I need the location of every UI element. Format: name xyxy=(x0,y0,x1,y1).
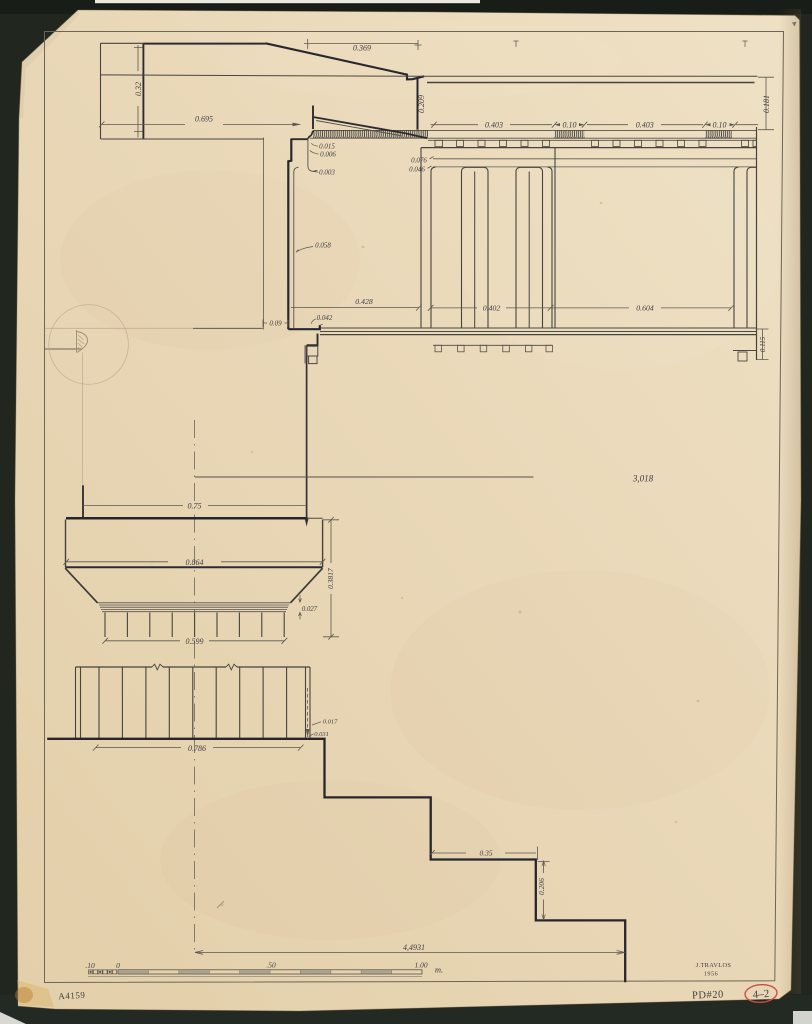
svg-text:0.369: 0.369 xyxy=(353,44,371,53)
svg-text:0.786: 0.786 xyxy=(188,744,206,753)
svg-text:A4159: A4159 xyxy=(58,990,85,1001)
svg-text:m.: m. xyxy=(435,965,443,975)
svg-text:0.031: 0.031 xyxy=(314,731,329,738)
svg-text:4,4931: 4,4931 xyxy=(403,943,425,952)
svg-text:0.32: 0.32 xyxy=(134,82,143,96)
svg-text:1956: 1956 xyxy=(704,971,718,978)
svg-text:4–2: 4–2 xyxy=(752,988,769,1001)
svg-text:0.599: 0.599 xyxy=(186,637,204,646)
svg-text:0.046: 0.046 xyxy=(409,166,425,174)
svg-text:0.027: 0.027 xyxy=(302,606,318,613)
svg-text:0.3817: 0.3817 xyxy=(326,568,335,589)
svg-text:0.003: 0.003 xyxy=(319,169,335,177)
svg-text:0.042: 0.042 xyxy=(317,314,333,322)
svg-text:0.206: 0.206 xyxy=(537,878,546,895)
svg-text:0.209: 0.209 xyxy=(417,95,426,113)
svg-text:.50: .50 xyxy=(266,961,276,970)
svg-text:0.015: 0.015 xyxy=(319,142,335,150)
svg-text:0.10: 0.10 xyxy=(713,121,727,130)
svg-text:0.403: 0.403 xyxy=(485,121,503,130)
svg-text:0.864: 0.864 xyxy=(186,558,204,567)
svg-text:0.09: 0.09 xyxy=(269,320,282,328)
svg-text:0.017: 0.017 xyxy=(323,719,338,726)
svg-text:0.428: 0.428 xyxy=(355,297,373,306)
svg-text:0: 0 xyxy=(116,961,120,970)
svg-text:3,018: 3,018 xyxy=(632,474,654,484)
svg-text:PD#20: PD#20 xyxy=(692,989,724,1001)
svg-text:0.10: 0.10 xyxy=(563,121,577,130)
svg-text:0.402: 0.402 xyxy=(483,304,501,313)
svg-text:J.TRAVLOS: J.TRAVLOS xyxy=(696,962,732,969)
svg-text:0.115: 0.115 xyxy=(759,336,767,352)
svg-text:0.058: 0.058 xyxy=(315,242,331,250)
svg-text:1.00: 1.00 xyxy=(414,961,427,970)
svg-text:0.695: 0.695 xyxy=(195,115,213,124)
svg-text:0.076: 0.076 xyxy=(411,157,427,165)
svg-text:0.35: 0.35 xyxy=(479,849,492,858)
svg-text:0.75: 0.75 xyxy=(188,502,202,511)
svg-text:0.006: 0.006 xyxy=(320,151,336,159)
svg-text:0.604: 0.604 xyxy=(636,304,654,313)
svg-text:.10: .10 xyxy=(85,961,95,970)
svg-text:0.403: 0.403 xyxy=(636,121,654,130)
svg-text:0.181: 0.181 xyxy=(762,95,771,113)
